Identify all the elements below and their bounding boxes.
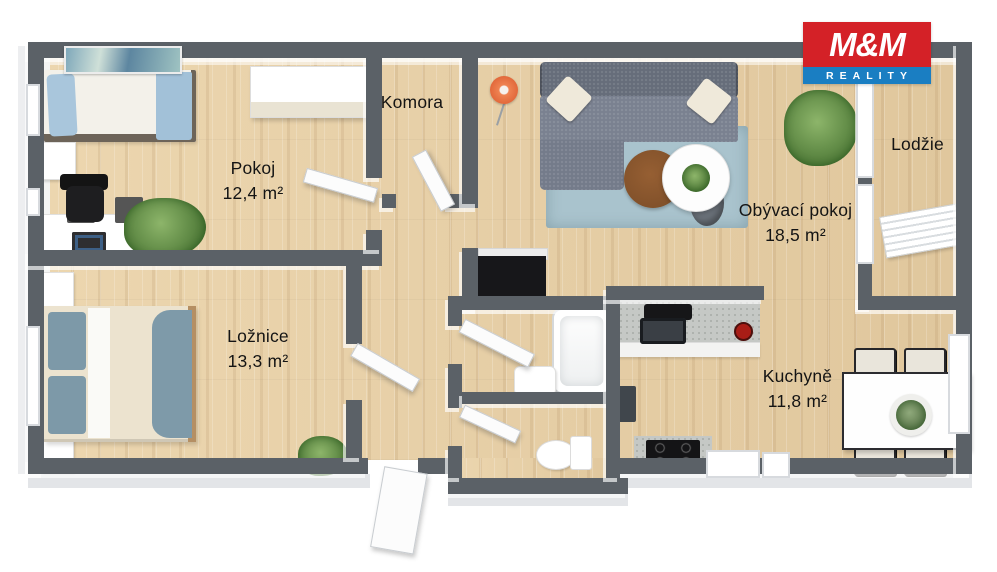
room-label-komora: Komora	[352, 90, 472, 115]
room-label-kuchyne: Kuchyně 11,8 m²	[710, 364, 885, 415]
wall	[448, 478, 628, 494]
room-label-lodzie: Lodžie	[870, 132, 965, 157]
logo-wordmark: M&M	[803, 22, 931, 67]
bed-pillow	[46, 73, 77, 136]
wall-picture	[64, 46, 182, 74]
window	[762, 452, 790, 478]
door-entrance	[370, 466, 428, 554]
window	[26, 188, 40, 216]
wall	[28, 250, 382, 266]
wall	[382, 194, 396, 208]
wall	[462, 392, 612, 404]
bathtub-basin	[560, 316, 604, 386]
kitchen-counter-front	[606, 342, 760, 357]
room-name: Ložnice	[178, 324, 338, 349]
wall	[366, 230, 382, 250]
room-area: 11,8 m²	[710, 389, 885, 414]
window	[856, 74, 874, 178]
window	[706, 450, 760, 478]
wall	[462, 296, 620, 310]
wall	[448, 364, 462, 408]
floor-lamp	[490, 76, 518, 104]
wall	[346, 400, 362, 458]
bed-pillow	[48, 312, 86, 370]
wall	[448, 296, 462, 326]
room-name: Pokoj	[168, 156, 338, 181]
bed-sheet	[88, 308, 110, 438]
room-label-loznice: Ložnice 13,3 m²	[178, 324, 338, 375]
wall	[858, 296, 956, 310]
company-logo: M&M REALITY	[803, 22, 931, 84]
sofa-chaise	[540, 140, 624, 190]
wall	[346, 266, 362, 344]
wall	[28, 458, 368, 474]
kitchen-sink	[640, 318, 686, 344]
room-area: 13,3 m²	[178, 349, 338, 374]
table-plant	[682, 164, 710, 192]
tv-lowboard	[478, 256, 546, 298]
room-label-obyvaci-pokoj: Obývací pokoj 18,5 m²	[698, 198, 893, 249]
room-name: Komora	[352, 90, 472, 115]
outer-shadow-bottom-left	[28, 474, 370, 488]
logo-subtitle: REALITY	[803, 67, 931, 84]
wall	[606, 296, 620, 478]
bed-pillow	[48, 376, 86, 434]
window	[26, 326, 40, 426]
wall	[606, 286, 764, 300]
outer-shadow-bottom-mid	[448, 494, 628, 506]
nightstand	[42, 272, 74, 308]
wall	[448, 446, 462, 478]
toilet-tank	[570, 436, 592, 470]
outer-shadow-bottom-right	[612, 474, 972, 488]
balcony-door	[948, 334, 970, 434]
room-label-pokoj: Pokoj 12,4 m²	[168, 156, 338, 207]
window	[26, 84, 40, 136]
room-name: Obývací pokoj	[698, 198, 893, 223]
room-name: Kuchyně	[710, 364, 885, 389]
wall	[612, 458, 972, 474]
floor-plan: Pokoj 12,4 m² Komora Obývací pokoj 18,5 …	[0, 0, 997, 572]
room-area: 12,4 m²	[168, 181, 338, 206]
stove-knob	[734, 322, 753, 341]
bed-blanket	[156, 72, 192, 140]
wall	[462, 56, 478, 204]
office-chair-seat	[66, 186, 104, 222]
table-centerpiece-plant	[896, 400, 926, 430]
room-area: 18,5 m²	[698, 223, 893, 248]
wall	[366, 56, 382, 178]
room-name: Lodžie	[870, 132, 965, 157]
